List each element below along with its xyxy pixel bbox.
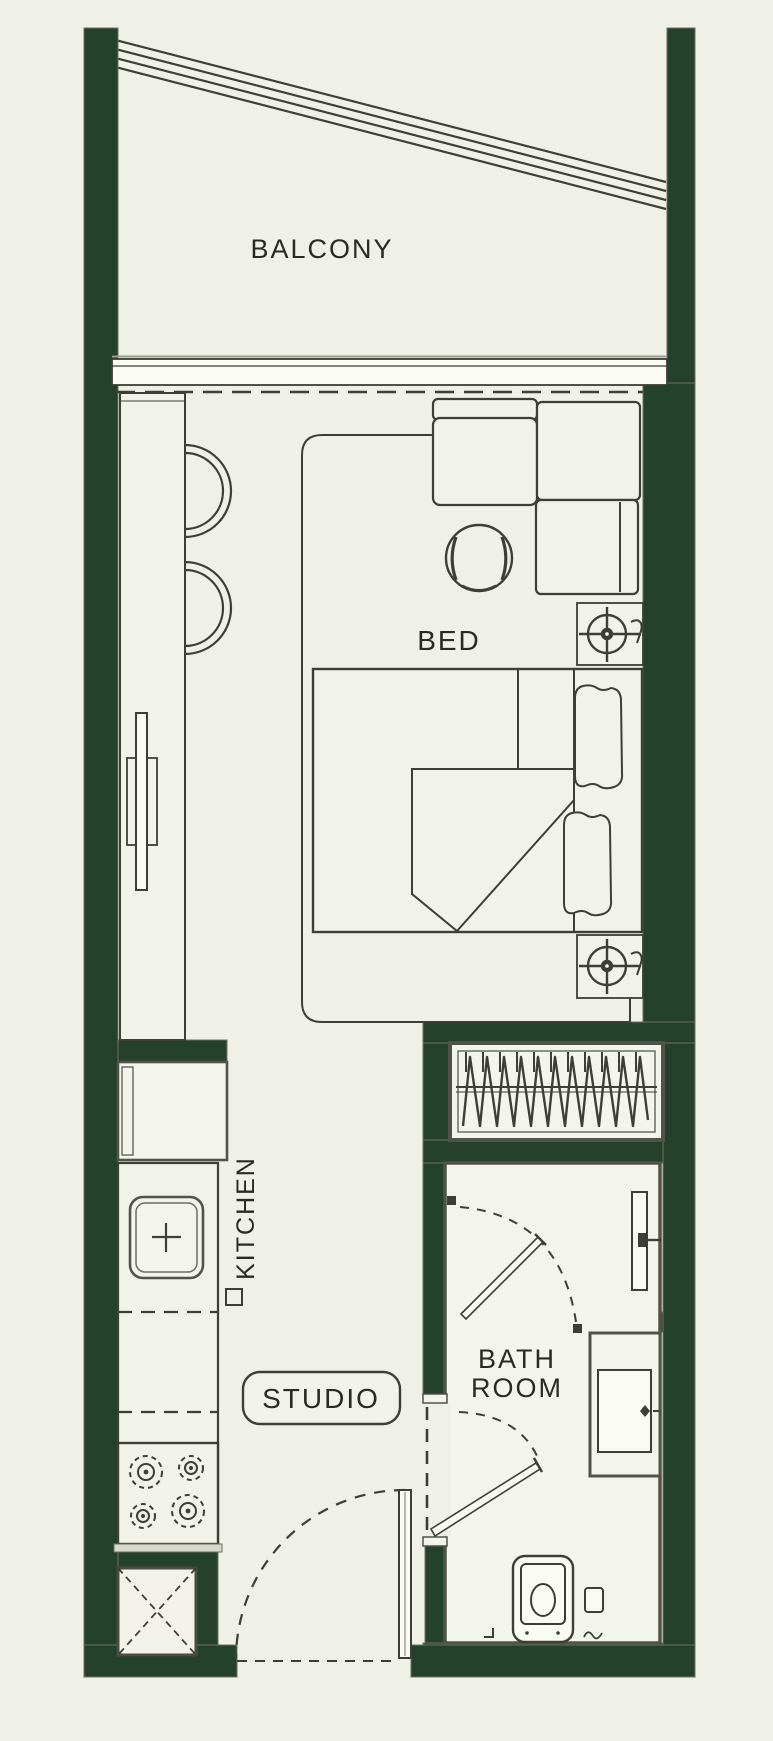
sofa-back-cushion — [433, 399, 537, 420]
door-stop — [447, 1196, 456, 1205]
service-shaft — [118, 1568, 196, 1655]
wall-balcony-right — [667, 28, 695, 385]
double-bed — [313, 669, 642, 932]
toilet-bolt — [556, 1631, 560, 1635]
counter-end-band — [114, 1544, 222, 1552]
kitchen-sink — [130, 1197, 203, 1278]
floorplan-drawing: BALCONY — [0, 0, 773, 1741]
bedside-lamp-bottom — [577, 935, 643, 998]
bedside-lamp-top — [577, 603, 643, 665]
wall-wardrobe-bath — [423, 1140, 663, 1163]
wardrobe — [450, 1043, 663, 1140]
pillow-icon — [575, 685, 622, 788]
stove-top — [118, 1443, 218, 1544]
studio-label: STUDIO — [262, 1383, 380, 1414]
sofa-corner-seat — [537, 402, 640, 500]
wall-right-upper — [643, 383, 695, 1030]
floorplan-page: BALCONY — [0, 0, 773, 1741]
balcony-label: BALCONY — [250, 234, 393, 264]
sofa-chaise-seat — [433, 418, 537, 505]
door-jamb — [423, 1394, 447, 1403]
bathroom: BATH ROOM — [423, 1163, 661, 1643]
tv-icon — [136, 713, 147, 890]
bed-label: BED — [417, 625, 481, 656]
refrigerator — [118, 1062, 227, 1160]
kitchen-counter-strip — [120, 393, 185, 1040]
bathroom-label-line1: BATH — [478, 1344, 556, 1374]
toilet-bolt — [525, 1631, 529, 1635]
pillow-icon — [564, 812, 611, 915]
door-jamb — [423, 1537, 447, 1546]
wall-bottom-right — [411, 1645, 695, 1677]
sliding-window-icon — [112, 359, 667, 385]
sprayer-holder — [585, 1588, 603, 1612]
vanity-sink — [590, 1333, 660, 1476]
wall-kitchen-stub — [118, 1040, 227, 1062]
studio-label-group: STUDIO — [243, 1372, 400, 1424]
wall-above-wardrobe — [423, 1022, 695, 1043]
kitchen-label: KITCHEN — [232, 1156, 260, 1280]
wall-bath-left-upper — [423, 1163, 445, 1402]
wall-left — [84, 28, 118, 1677]
wall-right-lower — [663, 1030, 695, 1677]
sofa-lower-seat — [536, 500, 638, 594]
bathroom-label-line2: ROOM — [471, 1373, 563, 1403]
gas-stove — [114, 1443, 222, 1552]
shower-head-icon — [638, 1233, 648, 1247]
door-stop — [573, 1324, 582, 1333]
wall-wardrobe-left — [423, 1043, 450, 1140]
